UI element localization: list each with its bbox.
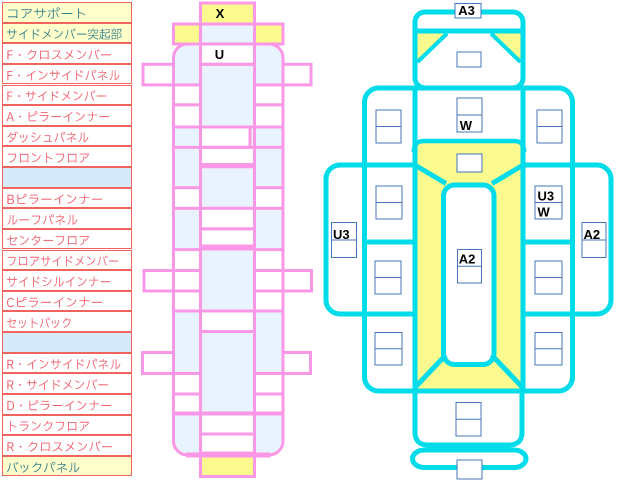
svg-text:A3: A3 [458,3,475,18]
svg-text:U3: U3 [333,227,350,242]
svg-text:U3: U3 [538,189,555,204]
svg-text:A2: A2 [459,252,476,267]
svg-text:X: X [216,6,225,21]
svg-text:A2: A2 [584,227,601,242]
svg-text:U: U [215,47,224,62]
svg-text:W: W [460,118,473,133]
svg-text:W: W [538,205,551,220]
